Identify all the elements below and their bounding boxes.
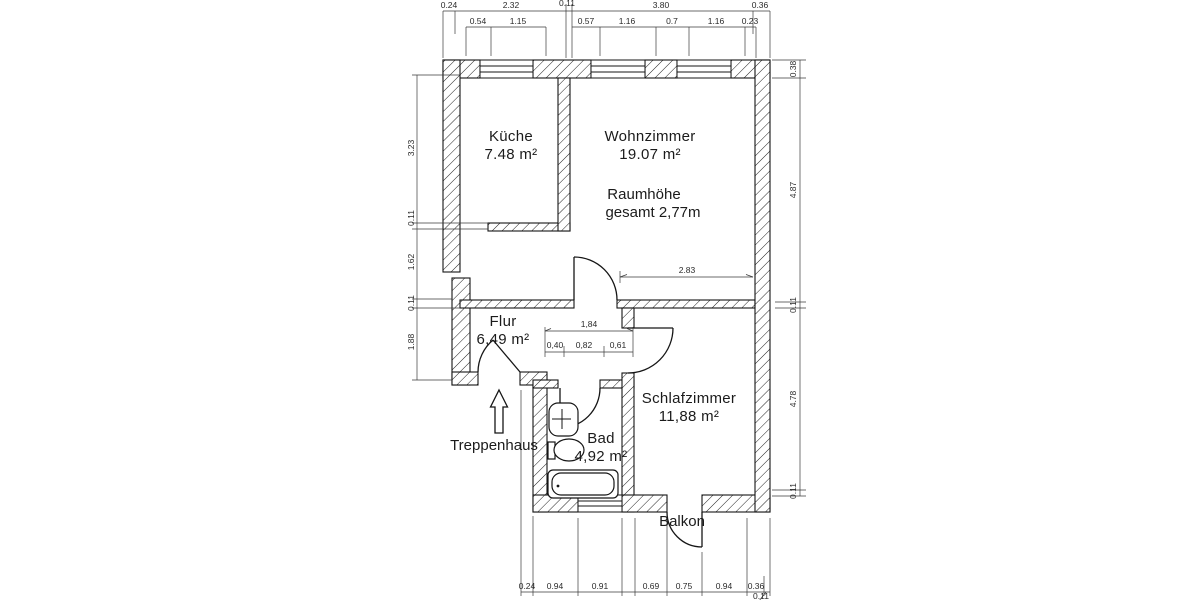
dimension-label: 0.75 [676, 581, 693, 591]
room-area-bad: 4,92 m² [575, 448, 628, 465]
dimension-label: 0,61 [610, 340, 627, 350]
dimension-label: 0.36 [748, 581, 765, 591]
dimension-label: 0.94 [716, 581, 733, 591]
dimension-label: 3.80 [653, 0, 670, 10]
stairs-arrow [491, 390, 508, 433]
living-room-door [574, 257, 617, 300]
dimension-label: 0.11 [788, 483, 798, 499]
dimension-label: 2.32 [503, 0, 520, 10]
bathtub [548, 470, 618, 498]
dimension-label: 4.78 [788, 390, 798, 407]
kitchen-window [480, 60, 533, 78]
room-label-flur: Flur [489, 313, 516, 330]
dimension-label: 4.87 [788, 181, 798, 198]
note-raumhoehe-line2: gesamt 2,77m [605, 204, 700, 221]
dimension-label: 0.24 [441, 0, 458, 10]
room-area-flur: 6,49 m² [477, 331, 530, 348]
room-label-wohnzimmer: Wohnzimmer [604, 128, 695, 145]
room-area-wohnzimmer: 19.07 m² [619, 146, 681, 163]
room-label-bad: Bad [587, 430, 615, 447]
room-label-kueche: Küche [489, 128, 533, 145]
dimension-label: 1.16 [708, 16, 725, 26]
dimension-label: 1,84 [581, 319, 598, 329]
room-area-kueche: 7.48 m² [485, 146, 538, 163]
dimension-label: 3.23 [406, 139, 416, 156]
room-label-schlafzimmer: Schlafzimmer [642, 390, 736, 407]
dimension-label: 0.69 [643, 581, 660, 591]
living-room-window-2 [677, 60, 731, 78]
dimension-label: 0.38 [788, 60, 798, 77]
dimension-label: 1.88 [406, 333, 416, 350]
room-labels: Küche7.48 m²Wohnzimmer19.07 m²Flur6,49 m… [477, 128, 737, 465]
dimension-label: 1.16 [619, 16, 636, 26]
dimension-label: 2.83 [679, 265, 696, 275]
dimension-label: 0.7 [666, 16, 678, 26]
note-treppenhaus: Treppenhaus [450, 437, 538, 454]
floor-plan-svg: Küche7.48 m²Wohnzimmer19.07 m²Flur6,49 m… [0, 0, 1200, 600]
dimension-label: 0.57 [578, 16, 595, 26]
bedroom-door [628, 328, 673, 373]
floor-plan-page: Küche7.48 m²Wohnzimmer19.07 m²Flur6,49 m… [0, 0, 1200, 600]
dimension-label: 0.11 [788, 297, 798, 313]
dimension-label: 0.23 [742, 16, 759, 26]
dimension-label: 0.11 [406, 295, 416, 311]
dimension-label: 0.94 [547, 581, 564, 591]
washbasin [549, 403, 578, 436]
dimension-label: 1.15 [510, 16, 527, 26]
dimension-label: 1.62 [406, 253, 416, 270]
room-area-schlafzimmer: 11,88 m² [659, 408, 719, 425]
living-room-window-1 [591, 60, 645, 78]
dimension-label: 0.91 [592, 581, 609, 591]
dimension-label: 0,40 [547, 340, 564, 350]
dimension-label: 0.36 [752, 0, 769, 10]
dimension-label: 0.11 [753, 591, 769, 600]
note-balkon: Balkon [659, 513, 705, 530]
note-raumhoehe-line1: Raumhöhe [607, 186, 680, 203]
dimension-label: 0.11 [559, 0, 575, 8]
dimension-label: 0,82 [576, 340, 593, 350]
dimension-label: 0.11 [406, 210, 416, 226]
dimension-label: 0.54 [470, 16, 487, 26]
dimension-label: 0.24 [519, 581, 536, 591]
